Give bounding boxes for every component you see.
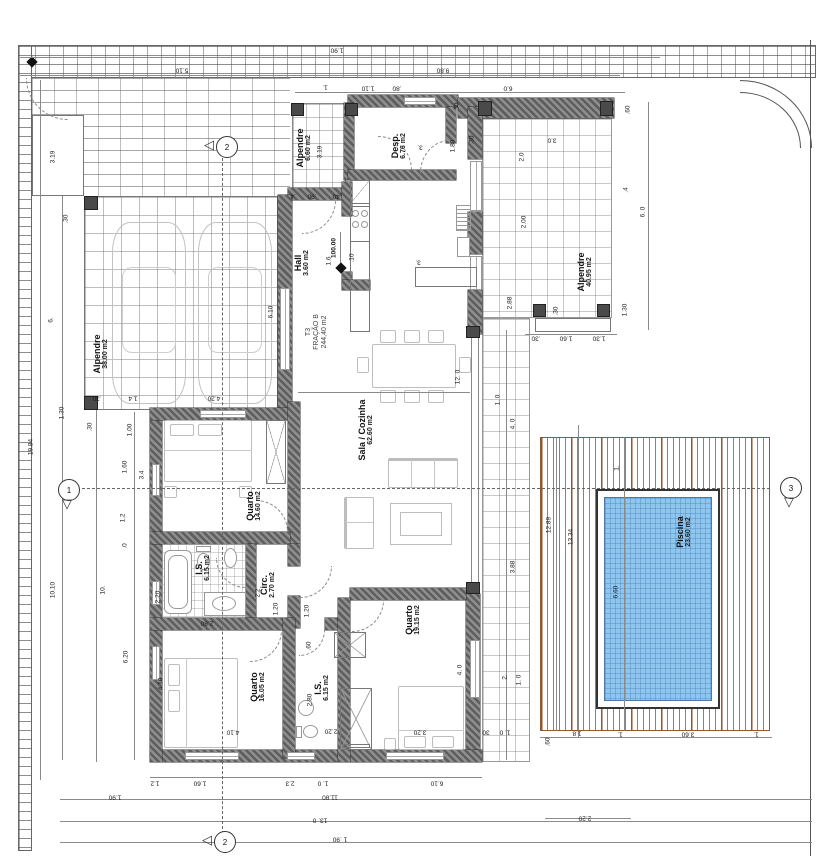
- dimension-label: 3.: [415, 259, 420, 266]
- dimension-label: .30: [63, 214, 70, 223]
- dimension-label: 1. 0: [500, 729, 511, 736]
- dimension-label: .0: [122, 543, 129, 548]
- dimension-label: .60: [625, 105, 632, 114]
- dimension-label: 4. 0: [510, 419, 517, 430]
- dimension-label: 1.30: [593, 335, 606, 342]
- dimension-label: 6.10: [431, 780, 444, 787]
- labels-layer: Alpendre38.00 m2Alpendre6.60 m2Hall3.60 …: [0, 0, 816, 856]
- dimension-label: 12. 0: [455, 370, 462, 384]
- dimension-label: 3.20: [414, 729, 427, 736]
- dimension-label: 6.10: [268, 306, 275, 319]
- room-label: Alpendre6.60 m2: [295, 128, 313, 167]
- room-label: Quarto16.05 m2: [249, 672, 267, 702]
- dimension-label: 3.0: [547, 137, 556, 144]
- room-label: Piscina23.60 m2: [675, 516, 693, 548]
- dimension-label: 1.: [753, 731, 758, 738]
- dimension-label: 2.80: [307, 694, 314, 707]
- section-arrow-icon: ◁: [204, 140, 214, 150]
- dimension-label: 2.3: [285, 780, 294, 787]
- dimension-label: 30: [482, 729, 489, 736]
- dimension-label: 1.4: [128, 395, 137, 402]
- dimension-label: 2.20: [579, 815, 592, 822]
- dimension-label: 10.10: [50, 582, 57, 598]
- dimension-label: 3.60: [682, 731, 695, 738]
- section-marker: 2◁: [214, 831, 236, 853]
- dimension-label: 1.20: [273, 603, 280, 616]
- dimension-label: 1.: [322, 84, 327, 91]
- dimension-label: 13. 0: [313, 817, 327, 824]
- room-label: Circ.2.70 m2: [259, 572, 277, 598]
- room-label: Alpendre40.95 m2: [576, 252, 594, 291]
- dimension-label: 10.: [100, 585, 107, 594]
- dimension-label: 12.89: [546, 517, 553, 533]
- dimension-label: 1.30: [59, 407, 66, 420]
- dimension-label: 1. 0: [516, 675, 523, 686]
- dimension-label: 19.84: [28, 439, 35, 455]
- dimension-label: 6.: [48, 317, 55, 322]
- room-label: Quarto19.15 m2: [404, 605, 422, 635]
- section-arrow-icon: ▽: [62, 499, 72, 509]
- dimension-label: 11.80: [322, 794, 338, 801]
- dimension-label: 2.80: [201, 620, 214, 627]
- dimension-label: 1.60: [560, 335, 573, 342]
- dimension-label: 2.20: [155, 591, 162, 604]
- dimension-label: 1.2: [120, 513, 127, 522]
- dimension-label: 1.10: [362, 85, 375, 92]
- dimension-label: 4.10: [227, 729, 240, 736]
- dimension-label: .4: [623, 187, 630, 192]
- floor-plan: Alpendre38.00 m2Alpendre6.60 m2Hall3.60 …: [0, 0, 816, 856]
- dimension-label: 1.00: [127, 424, 134, 437]
- dimension-label: 1. 0: [318, 780, 329, 787]
- dimension-label: 4. 0: [457, 665, 464, 676]
- section-marker: 3▽: [780, 477, 802, 499]
- room-label: I.S.6.15 m2: [313, 675, 331, 701]
- section-marker: 1▽: [58, 479, 80, 501]
- dimension-label: .4: [290, 193, 295, 200]
- section-arrow-icon: ◁: [202, 835, 212, 845]
- dimension-label: 2.: [502, 674, 509, 679]
- dimension-label: .80: [392, 85, 401, 92]
- section-marker: 2◁: [216, 136, 238, 158]
- room-label: Quarto14.60 m2: [245, 491, 263, 521]
- dimension-label: .10: [349, 253, 356, 262]
- dimension-label: 1.30: [622, 304, 629, 317]
- level-value: 100.00: [331, 238, 338, 258]
- dimension-label: .30: [92, 395, 101, 402]
- dimension-label: .60: [306, 641, 313, 650]
- dimension-label: 2.00: [521, 216, 528, 229]
- dimension-label: 3.88: [510, 561, 517, 574]
- dimension-label: 1.60: [194, 780, 207, 787]
- dimension-label: 1 .90: [333, 836, 347, 843]
- dimension-label: 1.: [614, 465, 621, 470]
- dimension-label: .30: [531, 335, 540, 342]
- dimension-label: 1.: [617, 731, 622, 738]
- dimension-label: 3.19: [50, 151, 57, 164]
- dimension-label: .30: [454, 102, 461, 111]
- dimension-label: .30: [469, 135, 476, 144]
- dimension-label: 13.34: [568, 529, 575, 545]
- dimension-label: 1.90: [331, 47, 344, 54]
- dimension-label: 3.4: [139, 470, 146, 479]
- dimension-label: 1.8: [572, 730, 581, 737]
- dimension-label: 6.20: [123, 651, 130, 664]
- dimension-label: .40: [332, 193, 341, 200]
- dimension-label: 2.20: [325, 728, 338, 735]
- dimension-label: 6.0: [503, 85, 512, 92]
- dimension-label: 2.2: [255, 588, 262, 597]
- dimension-label: 5.10: [176, 67, 189, 74]
- dimension-label: .30: [87, 422, 94, 431]
- dimension-label: .30: [553, 306, 560, 315]
- dimension-label: 2.88: [507, 297, 514, 310]
- room-label: Sala / Cozinha62.60 m2: [357, 399, 375, 460]
- room-label: I.S.6.15 m2: [194, 555, 212, 581]
- dimension-label: 1. 0: [495, 395, 502, 406]
- dimension-label: 4.10: [158, 678, 165, 691]
- dimension-label: 1.60: [122, 461, 129, 474]
- dimension-label: .60: [545, 737, 552, 746]
- dimension-label: 4.20: [208, 395, 221, 402]
- room-label: Alpendre38.00 m2: [92, 334, 110, 373]
- room-label: T3FRAÇÃO B244,40 m2: [305, 314, 329, 350]
- dimension-label: .90: [307, 193, 316, 200]
- dimension-label: 3.: [417, 144, 422, 151]
- dimension-label: 1.90: [109, 794, 122, 801]
- dimension-label: 1.80: [450, 140, 457, 153]
- room-label: Hall3.60 m2: [293, 250, 311, 276]
- level-marker: [335, 262, 346, 273]
- section-arrow-icon: ▽: [784, 497, 794, 507]
- dimension-label: 2.0: [519, 152, 526, 161]
- dimension-label: 1.2: [150, 780, 159, 787]
- dimension-label: 1.20: [304, 605, 311, 618]
- dimension-label: 6. 0: [640, 207, 647, 218]
- dimension-label: 6.60: [613, 586, 620, 599]
- dimension-label: 3.19: [317, 146, 324, 159]
- room-label: Desp.6.76 m2: [390, 133, 408, 159]
- dimension-label: 9.80: [437, 67, 450, 74]
